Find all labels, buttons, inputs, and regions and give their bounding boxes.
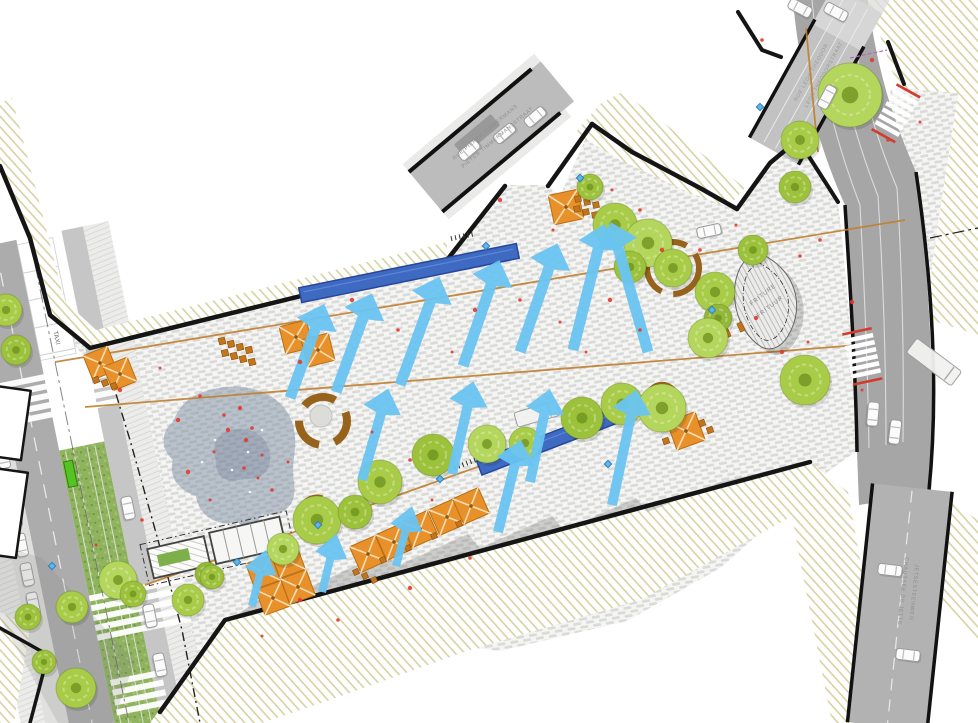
red-marker xyxy=(498,198,502,202)
red-marker xyxy=(780,350,784,354)
red-marker xyxy=(660,248,664,252)
cafe-chair-icon xyxy=(248,358,256,366)
water-sparkle xyxy=(231,469,234,472)
water-sparkle xyxy=(249,491,252,494)
red-marker xyxy=(818,238,822,242)
red-marker xyxy=(886,138,890,142)
red-marker xyxy=(408,586,412,590)
red-marker xyxy=(735,224,738,227)
red-marker xyxy=(396,328,400,332)
red-marker xyxy=(861,389,864,392)
cafe-chair-icon xyxy=(221,349,229,357)
cafe-chair-icon xyxy=(236,343,244,351)
red-marker xyxy=(261,454,264,457)
water-sparkle xyxy=(214,439,217,442)
red-marker xyxy=(559,321,562,324)
red-marker xyxy=(298,598,302,602)
red-marker xyxy=(209,499,212,502)
red-marker xyxy=(257,477,260,480)
red-marker xyxy=(261,635,264,638)
red-marker xyxy=(371,431,374,434)
red-marker xyxy=(298,360,302,364)
red-marker xyxy=(336,618,340,622)
red-marker xyxy=(118,388,122,392)
red-marker xyxy=(608,298,612,302)
red-marker xyxy=(238,406,242,410)
water-sparkle xyxy=(201,461,204,464)
red-marker xyxy=(798,254,802,258)
site-plan-canvas: TAXITAXITAXITAXI RUE PIERRE TIMMERMANS P… xyxy=(0,0,978,723)
red-marker xyxy=(518,298,522,302)
red-marker xyxy=(468,556,472,560)
cafe-chair-icon xyxy=(218,337,226,345)
car-icon xyxy=(865,401,880,427)
red-marker xyxy=(611,189,614,192)
red-marker xyxy=(431,499,434,502)
cafe-chair-icon xyxy=(239,355,247,363)
cafe-chair-icon xyxy=(227,340,235,348)
red-marker xyxy=(698,248,702,252)
red-marker xyxy=(95,544,98,547)
red-marker xyxy=(638,328,642,332)
red-marker xyxy=(638,208,642,212)
red-marker xyxy=(140,518,144,522)
red-marker xyxy=(408,458,412,462)
red-marker xyxy=(451,351,454,354)
red-marker xyxy=(213,451,216,454)
cafe-chair-icon xyxy=(573,205,580,212)
site-plan-screenshot: TAXITAXITAXITAXI RUE PIERRE TIMMERMANS P… xyxy=(0,0,978,723)
red-marker xyxy=(585,351,588,354)
red-marker xyxy=(870,58,874,62)
red-marker xyxy=(473,308,477,312)
red-marker xyxy=(186,470,190,474)
red-marker xyxy=(242,466,246,470)
red-marker xyxy=(919,121,922,124)
red-marker xyxy=(226,428,230,432)
red-marker xyxy=(159,367,162,370)
red-marker xyxy=(250,426,254,430)
cafe-chair-icon xyxy=(245,346,253,354)
cafe-chair-icon xyxy=(582,208,589,215)
red-marker xyxy=(222,413,226,417)
cafe-chair-icon xyxy=(230,352,238,360)
red-marker xyxy=(244,438,248,442)
red-marker xyxy=(850,300,854,304)
red-marker xyxy=(760,38,764,42)
red-marker xyxy=(287,461,290,464)
red-marker xyxy=(270,488,274,492)
red-marker xyxy=(176,418,180,422)
water-sparkle xyxy=(261,429,264,432)
red-marker xyxy=(807,341,810,344)
water-sparkle xyxy=(247,451,250,454)
red-marker xyxy=(198,394,202,398)
red-marker xyxy=(754,316,758,320)
red-marker xyxy=(350,298,354,302)
red-marker xyxy=(552,229,555,232)
